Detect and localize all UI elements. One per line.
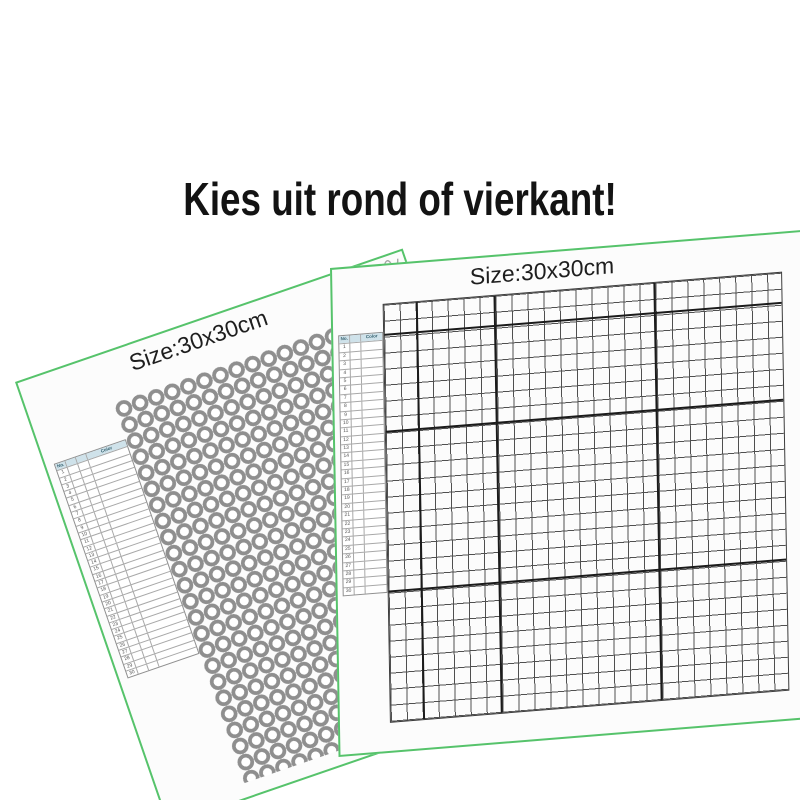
- legend-cell: [353, 511, 364, 519]
- square-grid-pattern: [383, 272, 790, 723]
- legend-cell: 25: [343, 545, 354, 553]
- legend-cell: [352, 452, 363, 460]
- legend-cell: [354, 536, 365, 544]
- legend-cell: [352, 418, 363, 426]
- legend-cell: [352, 427, 363, 435]
- legend-cell: [366, 585, 387, 594]
- legend-cell: [351, 402, 362, 410]
- legend-cell: [353, 486, 364, 494]
- legend-cell: 16: [342, 470, 353, 478]
- legend-cell: 9: [341, 411, 352, 419]
- legend-cell: 23: [343, 528, 354, 536]
- legend-cell: 6: [340, 386, 351, 394]
- legend-cell: [354, 544, 365, 552]
- legend-cell: 17: [342, 478, 353, 486]
- legend-cell: [354, 570, 365, 578]
- legend-cell: 26: [343, 554, 354, 562]
- legend-cell: 21: [342, 512, 353, 520]
- legend-cell: 28: [343, 570, 354, 578]
- legend-cell: [352, 435, 363, 443]
- legend-cell: [351, 385, 362, 393]
- legend-cell: 13: [341, 445, 352, 453]
- legend-cell: 10: [341, 419, 352, 427]
- legend-cell: 18: [342, 487, 353, 495]
- legend-cell: 22: [342, 520, 353, 528]
- legend-cell: 11: [341, 428, 352, 436]
- legend-cell: [351, 393, 362, 401]
- legend-cell: 27: [343, 562, 354, 570]
- legend-cell: 1: [339, 344, 350, 352]
- legend-cell: 20: [342, 503, 353, 511]
- legend-cell: 24: [343, 537, 354, 545]
- legend-cell: [351, 377, 362, 385]
- legend-cell: 7: [340, 394, 351, 402]
- legend-cell: [354, 553, 365, 561]
- legend-table-square: No.Color12345678910111213141516171819202…: [338, 332, 387, 597]
- legend-cell: [354, 528, 365, 536]
- legend-cell: [351, 410, 362, 418]
- legend-cell: 14: [341, 453, 352, 461]
- legend-cell: [353, 519, 364, 527]
- legend-cell: [350, 343, 361, 351]
- legend-cell: 8: [340, 403, 351, 411]
- legend-cell: 2: [339, 352, 350, 360]
- legend-cell: [352, 444, 363, 452]
- page: { "heading": { "text": "Kies uit rond of…: [0, 0, 800, 800]
- legend-cell: [353, 502, 364, 510]
- legend-cell: 29: [343, 579, 354, 587]
- legend-cell: 5: [340, 377, 351, 385]
- legend-cell: 3: [340, 361, 351, 369]
- legend-cell: 15: [341, 461, 352, 469]
- legend-cell: [352, 460, 363, 468]
- legend-cell: 19: [342, 495, 353, 503]
- legend-cell: 30: [344, 587, 355, 595]
- legend-cell: [350, 335, 361, 343]
- legend-cell: [354, 578, 365, 586]
- legend-cell: [351, 360, 362, 368]
- legend-cell: [354, 561, 365, 569]
- legend-cell: No.: [339, 335, 350, 343]
- legend-cell: 12: [341, 436, 352, 444]
- legend-cell: 4: [340, 369, 351, 377]
- heading-title: Kies uit rond of vierkant!: [80, 176, 720, 222]
- legend-cell: [353, 477, 364, 485]
- legend-cell: [350, 351, 361, 359]
- legend-cell: [351, 368, 362, 376]
- legend-cell: [355, 586, 366, 594]
- canvas-square: Size:30x30cm No.Color1234567891011121314…: [330, 229, 800, 757]
- legend-cell: [353, 494, 364, 502]
- legend-cell: [353, 469, 364, 477]
